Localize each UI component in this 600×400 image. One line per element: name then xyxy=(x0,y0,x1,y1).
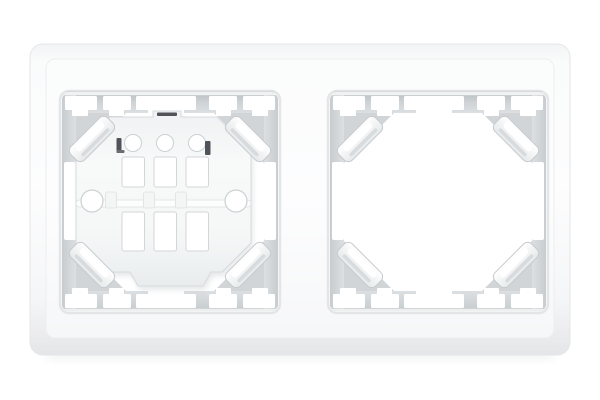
bracket-round-hole xyxy=(157,135,174,152)
bracket-round-hole xyxy=(125,135,142,152)
switch-frame-illustration xyxy=(0,0,600,400)
bracket-screw-hole-left xyxy=(81,190,103,212)
product-photo xyxy=(0,0,600,400)
bracket-slot xyxy=(154,157,177,187)
bracket-slot xyxy=(154,212,177,251)
bracket-screw-hole-right xyxy=(225,190,247,212)
bracket-tab xyxy=(176,192,187,208)
bracket-slot xyxy=(122,212,145,251)
left-opening xyxy=(60,91,280,313)
bracket-slot xyxy=(186,212,209,251)
bracket-top-tab-slot xyxy=(157,113,177,117)
right-opening xyxy=(328,91,548,313)
bracket-round-hole xyxy=(189,135,206,152)
bracket-dark-slot xyxy=(205,141,211,155)
bracket-slot xyxy=(186,157,209,187)
bracket-slot xyxy=(122,157,145,187)
bracket-tab xyxy=(144,192,155,208)
bracket-dark-slot-foot xyxy=(117,150,125,153)
bracket-tab xyxy=(106,192,117,208)
